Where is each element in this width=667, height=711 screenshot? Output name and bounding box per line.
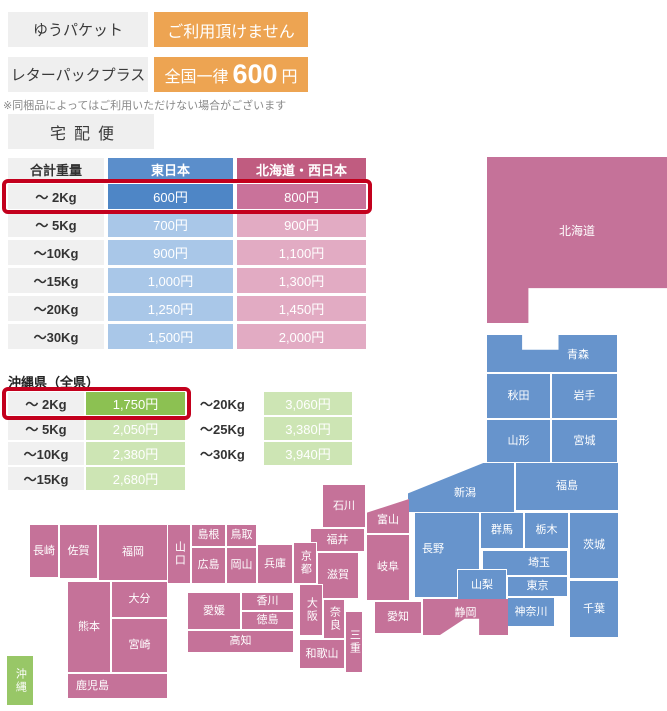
- prefecture-label: 静岡: [455, 607, 477, 620]
- prefecture-label: 大分: [129, 593, 151, 606]
- prefecture-label: 山梨: [471, 579, 493, 592]
- prefecture-label: 佐賀: [68, 545, 90, 558]
- map-tile-gunma: 群馬: [481, 513, 523, 548]
- prefecture-label: 愛知: [387, 611, 409, 624]
- prefecture-label: 鳥取: [231, 529, 253, 542]
- map-tile-nagasaki: 長崎: [30, 525, 58, 577]
- map-tile-shimane: 島根: [192, 525, 225, 546]
- prefecture-label: 広島: [198, 559, 220, 572]
- map-tile-nara: 奈良: [324, 600, 344, 638]
- map-tile-yamaguchi: 山口: [168, 525, 190, 583]
- map-tile-kagoshima: 鹿児島: [68, 674, 167, 698]
- map-tile-gifu: 岐阜: [367, 535, 409, 600]
- prefecture-label: 徳島: [257, 614, 279, 627]
- shipping-rates-page: ゆうパケット ご利用頂けません レターパックプラス 全国一律 600 円 ※同梱…: [0, 0, 667, 711]
- prefecture-label: 富山: [377, 514, 399, 527]
- prefecture-label: 岐阜: [377, 561, 399, 574]
- prefecture-label: 宮城: [574, 435, 596, 448]
- map-tile-niigata: 新潟: [408, 463, 514, 512]
- map-tile-miyazaki: 宮崎: [112, 619, 167, 672]
- prefecture-label: 和歌山: [306, 648, 339, 661]
- map-tile-oita: 大分: [112, 582, 167, 617]
- prefecture-label: 石川: [333, 500, 355, 513]
- prefecture-label: 北海道: [559, 225, 595, 239]
- prefecture-label: 山形: [508, 435, 530, 448]
- map-tile-ibaraki: 茨城: [570, 513, 618, 578]
- map-tile-kochi: 高知: [188, 631, 293, 652]
- prefecture-label: 神奈川: [515, 606, 548, 619]
- map-tile-tokyo: 東京: [508, 577, 567, 596]
- map-tile-fukui: 福井: [311, 529, 364, 551]
- map-tile-ishikawa: 石川: [323, 485, 365, 527]
- prefecture-label: 福島: [556, 480, 578, 493]
- map-tile-yamanashi: 山梨: [458, 570, 506, 600]
- prefecture-label: 栃木: [536, 524, 558, 537]
- prefecture-label: 大阪: [305, 597, 318, 623]
- map-tile-hyogo: 兵庫: [258, 545, 292, 583]
- prefecture-label: 沖縄: [14, 668, 27, 694]
- map-tile-chiba: 千葉: [570, 581, 618, 637]
- prefecture-label: 新潟: [454, 487, 476, 500]
- map-tile-osaka: 大阪: [300, 585, 322, 635]
- prefecture-label: 岩手: [574, 390, 596, 403]
- map-tile-shiga: 滋賀: [318, 553, 358, 598]
- map-tile-yamagata: 山形: [487, 420, 550, 462]
- prefecture-label: 秋田: [508, 390, 530, 403]
- prefecture-label: 長野: [422, 543, 444, 556]
- prefecture-label: 群馬: [491, 524, 513, 537]
- prefecture-label: 東京: [527, 580, 549, 593]
- map-tile-shizuoka: 静岡: [423, 599, 508, 635]
- prefecture-label: 三重: [348, 629, 361, 655]
- map-tile-tokushima: 徳島: [242, 612, 293, 629]
- prefecture-label: 青森: [567, 349, 589, 362]
- map-tile-kagawa: 香川: [242, 593, 293, 610]
- prefecture-label: 岡山: [231, 559, 253, 572]
- prefecture-label: 兵庫: [264, 558, 286, 571]
- map-tile-saga: 佐賀: [60, 525, 97, 578]
- map-tile-iwate: 岩手: [552, 374, 617, 418]
- map-tile-miyagi: 宮城: [552, 420, 617, 462]
- prefecture-label: 奈良: [328, 606, 341, 632]
- prefecture-label: 島根: [198, 529, 220, 542]
- prefecture-label: 熊本: [78, 621, 100, 634]
- map-tile-kyoto: 京都: [294, 543, 316, 583]
- prefecture-label: 福井: [327, 534, 349, 547]
- prefecture-label: 高知: [230, 635, 252, 648]
- map-tile-aichi: 愛知: [375, 602, 421, 633]
- map-tile-wakayama: 和歌山: [300, 640, 344, 668]
- prefecture-label: 千葉: [583, 603, 605, 616]
- prefecture-label: 宮崎: [129, 639, 151, 652]
- japan-map: 北海道青森秋田岩手山形宮城新潟福島長野群馬栃木茨城埼玉山梨東京神奈川千葉石川富山…: [0, 0, 667, 711]
- map-tile-toyama: 富山: [367, 499, 409, 533]
- prefecture-label: 福岡: [122, 546, 144, 559]
- map-tile-aomori: 青森: [487, 335, 617, 372]
- prefecture-label: 山口: [173, 541, 186, 567]
- map-tile-mie: 三重: [346, 612, 362, 672]
- map-tile-ehime: 愛媛: [188, 593, 240, 629]
- prefecture-label: 茨城: [583, 539, 605, 552]
- map-tile-fukuoka: 福岡: [99, 525, 167, 580]
- map-tile-okayama: 岡山: [227, 548, 256, 583]
- map-tile-tottori: 鳥取: [227, 525, 256, 546]
- map-tile-tochigi: 栃木: [525, 513, 568, 548]
- prefecture-label: 鹿児島: [76, 680, 109, 693]
- map-tile-hokkaido: 北海道: [487, 157, 667, 323]
- map-tile-kanagawa: 神奈川: [508, 598, 554, 626]
- map-tile-okinawa: 沖縄: [7, 656, 33, 705]
- prefecture-label: 滋賀: [327, 569, 349, 582]
- map-tile-akita: 秋田: [487, 374, 550, 418]
- prefecture-label: 長崎: [33, 545, 55, 558]
- prefecture-label: 愛媛: [203, 605, 225, 618]
- map-tile-hiroshima: 広島: [192, 548, 225, 583]
- prefecture-label: 京都: [299, 550, 312, 576]
- prefecture-label: 埼玉: [528, 557, 550, 570]
- map-tile-kumamoto: 熊本: [68, 582, 110, 672]
- map-tile-fukushima: 福島: [516, 463, 618, 510]
- prefecture-label: 香川: [257, 595, 279, 608]
